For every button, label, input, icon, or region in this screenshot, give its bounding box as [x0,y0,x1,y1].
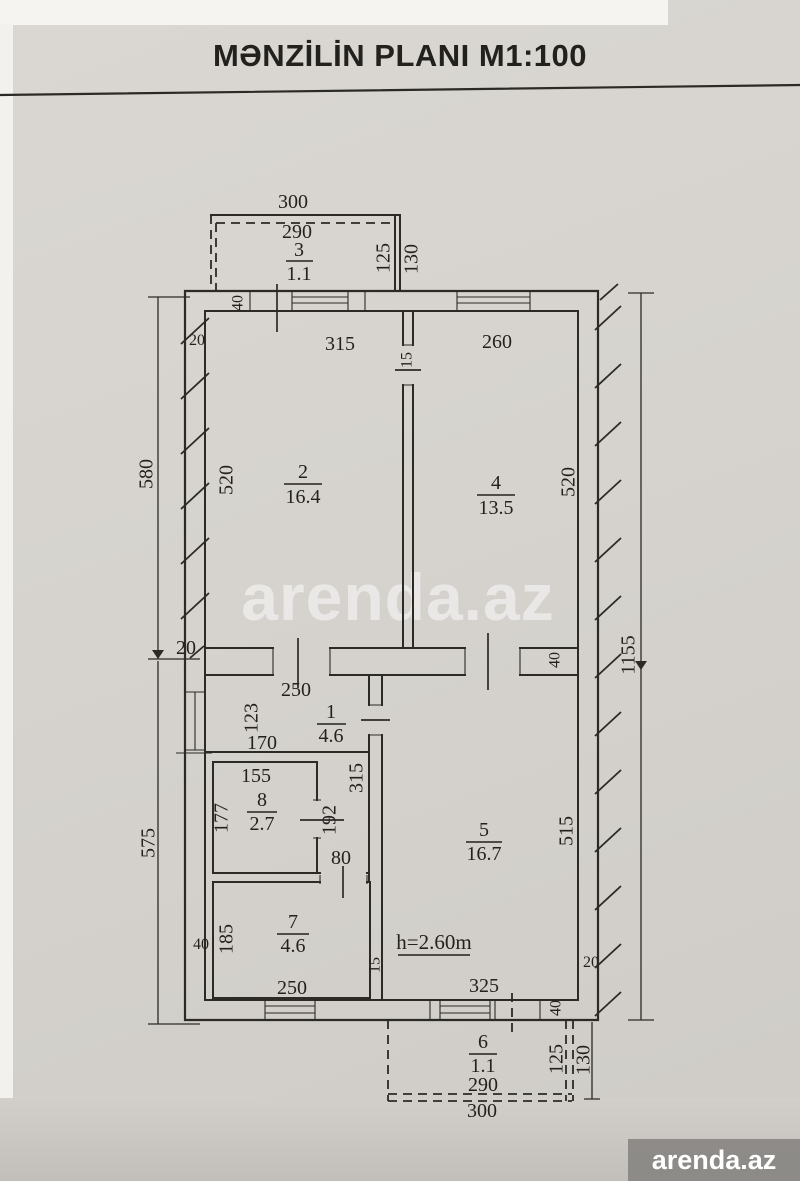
dim-wall-15-room5: 15 [367,957,384,973]
dim-room5-width: 325 [469,975,499,997]
dim-offset-20-bottom-right: 20 [583,954,599,971]
building-walls [185,284,598,1020]
room8-number: 8 [257,789,267,811]
dim-left-upper-580: 580 [136,459,158,489]
dim-offset-20-top-left: 20 [189,332,205,349]
dim-wall-40-bottom: 40 [548,1000,565,1016]
room6-number: 6 [478,1031,488,1053]
dim-room4-width: 260 [482,331,512,353]
room1-area: 4.6 [319,725,344,747]
dim-balcony-top-outer-width: 300 [278,191,308,213]
dim-room8-door-192: 192 [319,805,341,835]
dim-left-lower-575: 575 [138,828,160,858]
room7-number: 7 [288,911,298,933]
dim-room4-height: 520 [558,467,580,497]
room4-number: 4 [491,472,501,494]
room2-area: 16.4 [286,486,321,508]
title-rule [0,85,800,95]
dim-balcony-bottom-outer-depth: 130 [573,1045,595,1075]
dim-room5-height: 515 [556,816,578,846]
dimension-labels: 300 290 125 130 40 20 15 315 260 520 520… [136,191,640,1122]
dim-room8-height: 177 [211,803,233,833]
watermark-badge-text: arenda.az [652,1145,777,1175]
dim-wall-40-left: 40 [193,936,209,953]
dim-offset-20-mid-left: 20 [176,637,196,659]
dim-room2-height: 520 [216,465,238,495]
room5-area: 16.7 [467,843,502,865]
watermark-center: arenda.az [241,560,554,634]
dim-balcony-bottom-inner-depth: 125 [546,1044,568,1074]
dim-balcony-bottom-inner-width: 290 [468,1074,498,1096]
dim-hall-170: 170 [247,732,277,754]
room8-area: 2.7 [250,813,275,835]
dim-hall-123: 123 [241,703,263,733]
room3-area: 1.1 [287,263,312,285]
watermark-badge: arenda.az [628,1139,800,1181]
dim-balcony-top-inner-depth: 125 [373,243,395,273]
dim-opening-80: 80 [331,847,351,869]
room4-area: 13.5 [479,497,514,519]
dim-room7-width: 250 [277,977,307,999]
dim-wall-40-top-left: 40 [230,295,247,311]
dim-balcony-top-outer-depth: 130 [401,244,423,274]
room5-number: 5 [479,819,489,841]
dim-hall-width: 250 [281,679,311,701]
page-title: MƏNZİLİN PLANI M1:100 [213,38,587,73]
floor-plan-svg: arenda.az MƏNZİLİN PLANI M1:100 [0,0,800,1181]
ceiling-height-note: h=2.60m [396,930,471,954]
dim-corridor-315: 315 [346,763,368,793]
dim-balcony-top-inner-width: 290 [282,221,312,243]
dim-room2-width: 315 [325,333,355,355]
hatch-marks [181,284,621,1016]
room7-area: 4.6 [281,935,306,957]
dim-room7-height: 185 [216,924,238,954]
dim-balcony-bottom-outer-width: 300 [467,1100,497,1122]
dim-wall-40-mid-right: 40 [547,652,564,668]
room2-number: 2 [298,461,308,483]
dim-right-1155: 1155 [618,635,640,674]
dim-room8-width: 155 [241,765,271,787]
room1-number: 1 [326,701,336,723]
dim-door-15: 15 [399,352,416,368]
